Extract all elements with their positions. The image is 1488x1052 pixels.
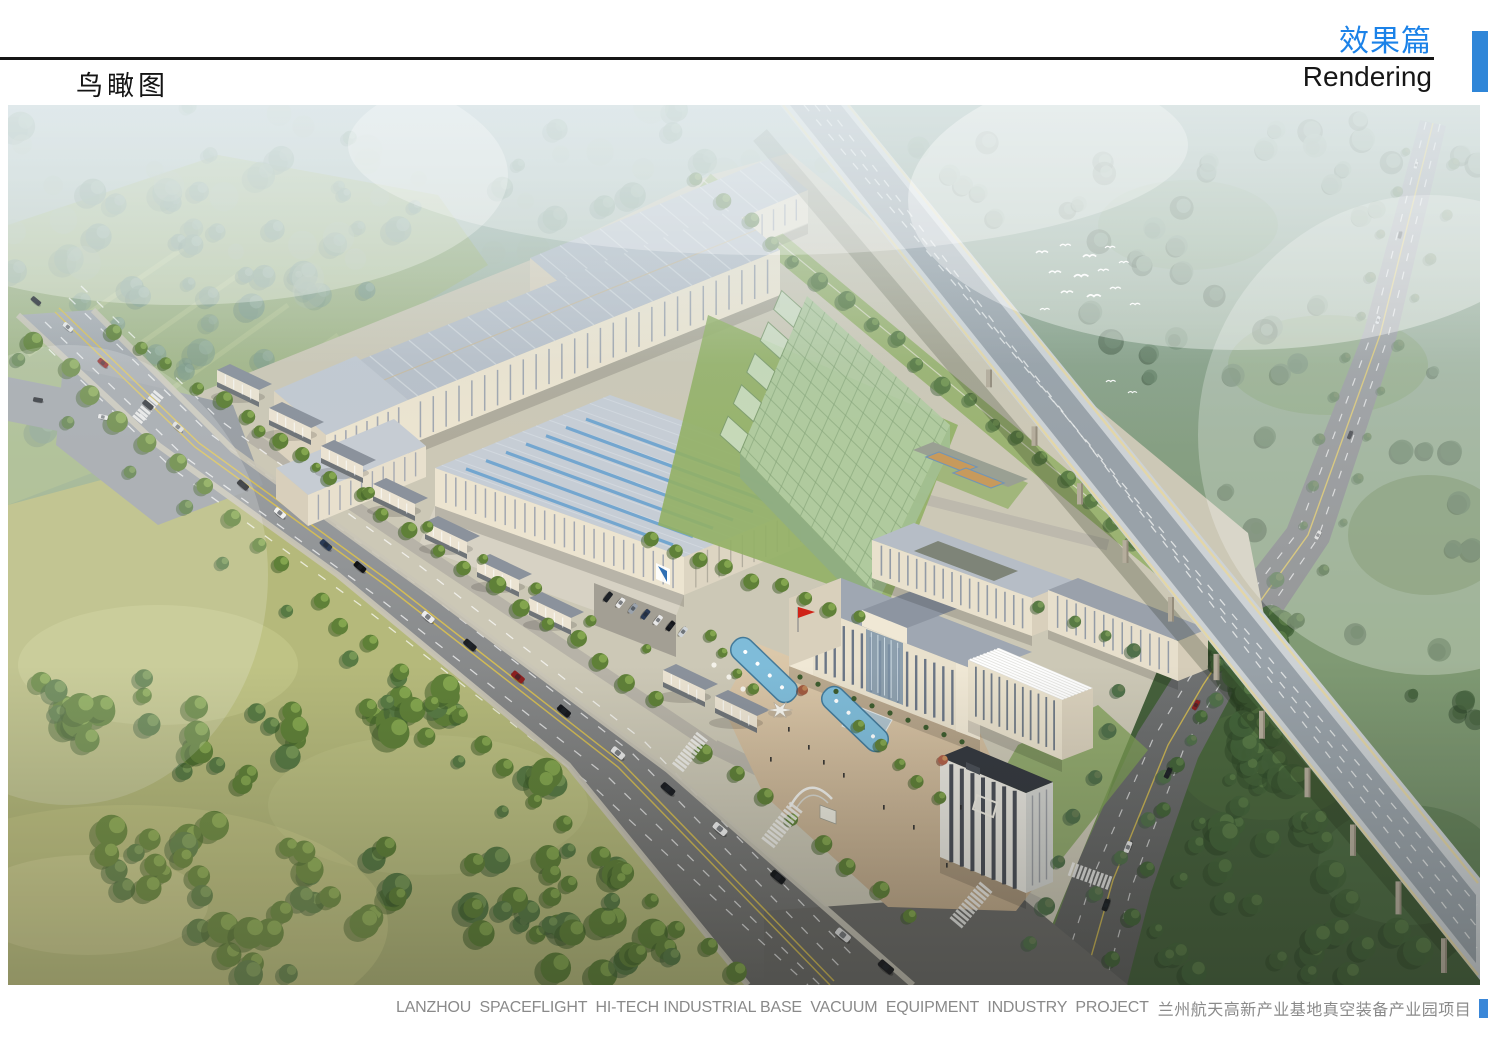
rendering-figure [8,105,1480,985]
section-title-zh: 效果篇 [1339,16,1432,60]
header-rule [0,57,1434,60]
caption-marker-square [1479,999,1488,1018]
section-title-en: Rendering [1303,61,1432,93]
caption-en: LANZHOU SPACEFLIGHT HI-TECH INDUSTRIAL B… [396,999,1149,1017]
caption: LANZHOU SPACEFLIGHT HI-TECH INDUSTRIAL B… [396,996,1488,1020]
corner-tab [1472,31,1488,92]
page-title: 鸟瞰图 [76,64,169,103]
aerial-rendering [8,105,1480,985]
caption-zh: 兰州航天高新产业基地真空装备产业园项目 [1158,996,1472,1020]
